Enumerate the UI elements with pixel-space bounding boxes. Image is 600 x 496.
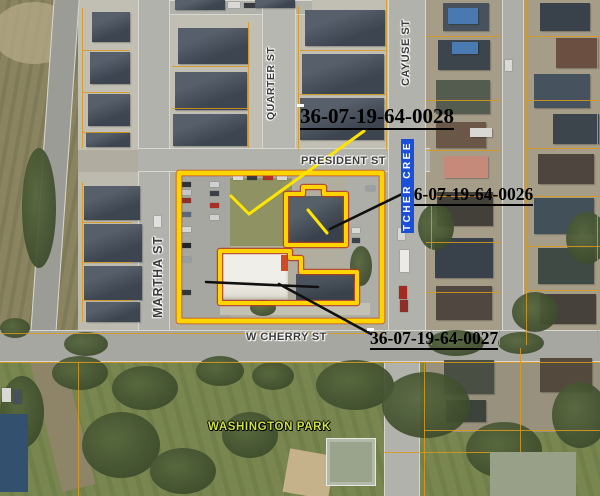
- street-label-cayuse-text: CAYUSE ST: [400, 20, 412, 86]
- street-label-w-cherry-st: W CHERRY ST: [246, 331, 327, 343]
- parcel-label-0027-text: 36-07-19-64-0027: [370, 329, 498, 350]
- street-label-martha-text: MARTHA ST: [151, 236, 165, 318]
- callout-line-0026-yellow: [308, 210, 327, 233]
- parcel-0027-boundary: [220, 251, 357, 303]
- callout-line-0026: [330, 194, 402, 229]
- parcel-label-0027: 36-07-19-64-0027: [367, 328, 374, 331]
- street-label-president-st: PRESIDENT ST: [301, 155, 386, 167]
- parcel-label-0026-text: 36-07-19-64-0026: [405, 185, 533, 206]
- parcel-label-0028: 36-07-19-64-0028: [297, 104, 304, 107]
- parcel-0028-underline-stroke: [179, 173, 382, 321]
- callout-line-0027: [206, 282, 371, 334]
- parcel-0028-boundary: [179, 173, 382, 321]
- park-label-washington-park: WASHINGTON PARK: [208, 421, 331, 433]
- parcel-label-0028-text: 36-07-19-64-0028: [300, 105, 454, 130]
- creek-label-text: TCHER CREE: [401, 139, 414, 233]
- aerial-map[interactable]: 36-07-19-64-0028 36-07-19-64-0026 36-07-…: [0, 0, 600, 496]
- parcel-0026-boundary: [286, 187, 346, 245]
- street-label-quarter-text: QUARTER ST: [265, 47, 277, 120]
